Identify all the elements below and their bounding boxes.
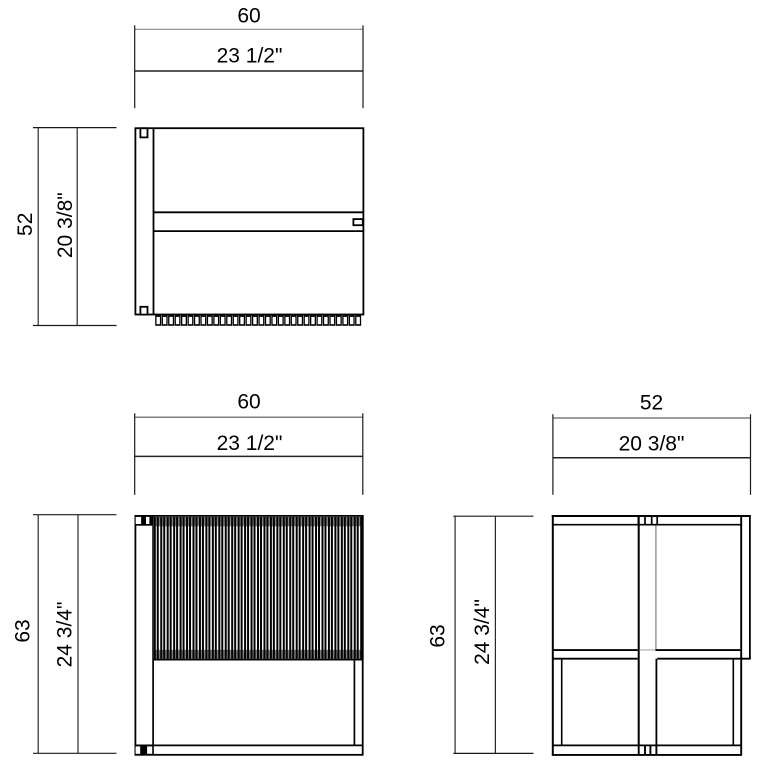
svg-text:60: 60 (237, 4, 260, 27)
svg-text:23 1/2": 23 1/2" (217, 45, 283, 68)
svg-text:52: 52 (640, 392, 663, 415)
svg-text:52: 52 (14, 213, 37, 236)
svg-text:24 3/4": 24 3/4" (471, 599, 494, 665)
svg-text:20 3/8": 20 3/8" (54, 192, 77, 258)
svg-text:60: 60 (237, 391, 260, 414)
svg-text:23 1/2": 23 1/2" (217, 432, 283, 455)
svg-text:20 3/8": 20 3/8" (619, 433, 685, 456)
svg-text:24 3/4": 24 3/4" (54, 602, 77, 668)
svg-text:63: 63 (11, 619, 34, 642)
svg-text:63: 63 (427, 624, 450, 647)
